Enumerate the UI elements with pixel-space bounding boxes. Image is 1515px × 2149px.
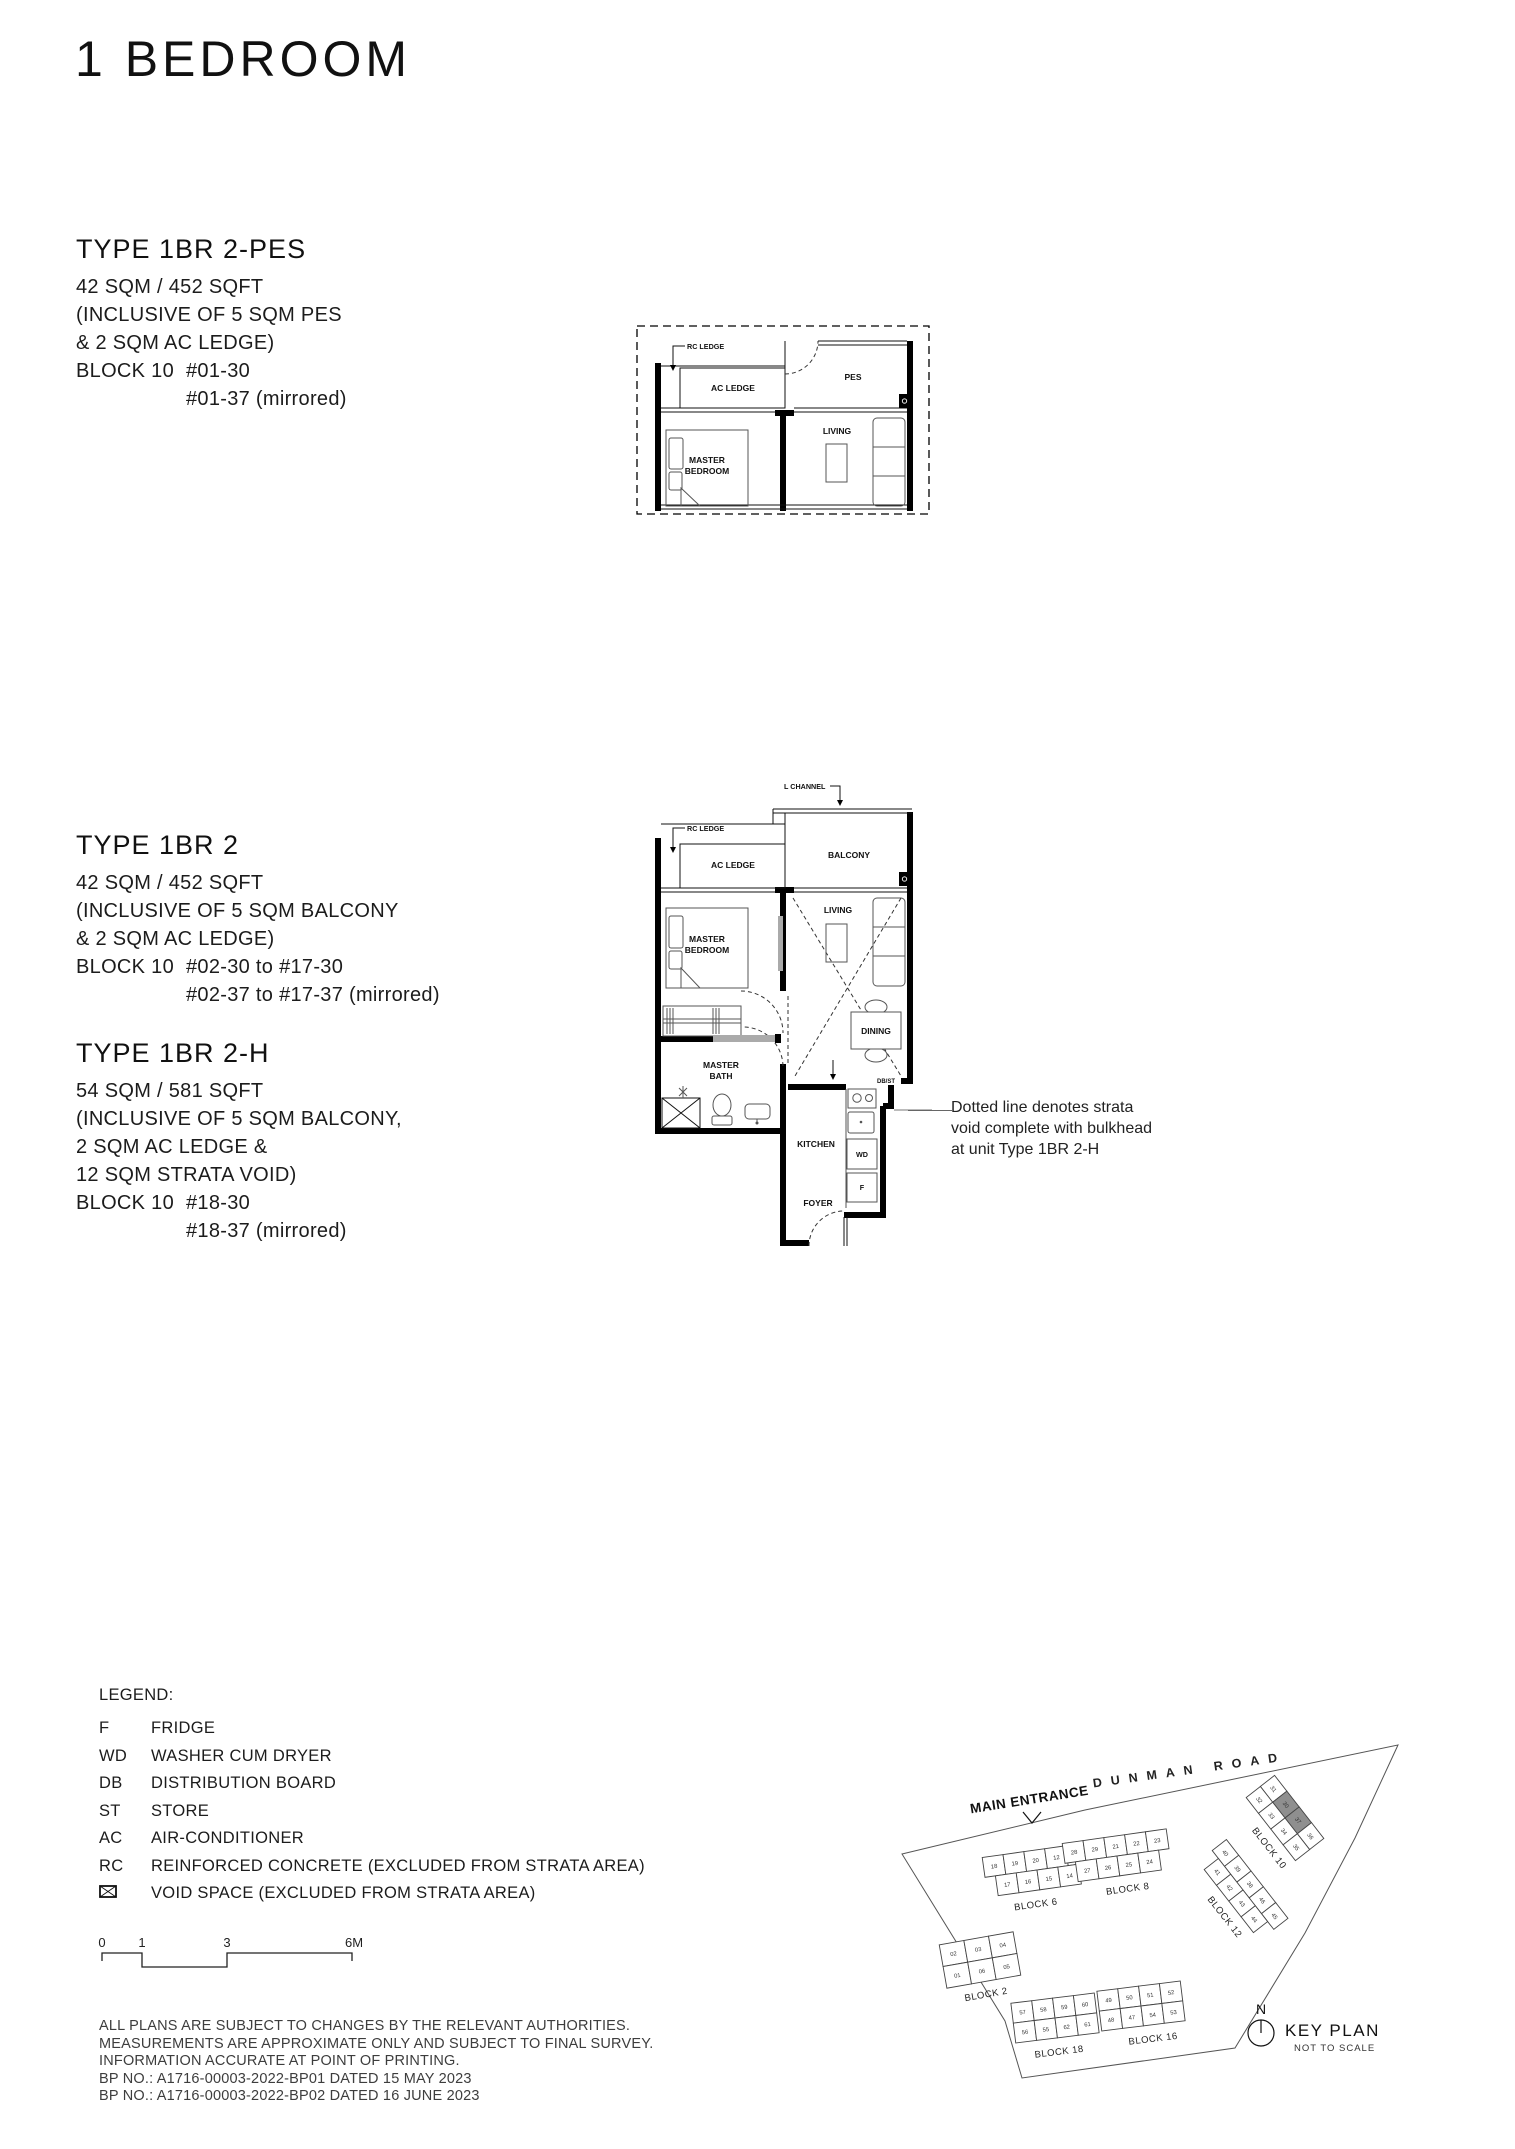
keyplan-unit-number: 62: [1063, 2024, 1070, 2031]
room-label-foyer: FOYER: [803, 1198, 832, 1208]
keyplan-unit-number: 26: [1105, 1865, 1112, 1872]
legend-row: AC AIR-CONDITIONER: [99, 1825, 645, 1853]
unit-range: #18-37 (mirrored): [186, 1217, 347, 1245]
room-label-kitchen: KITCHEN: [797, 1139, 835, 1149]
keyplan-unit-number: 20: [1032, 1858, 1039, 1865]
bath-sliding-door: [713, 1035, 779, 1042]
bath-door-arc: [744, 1027, 783, 1066]
room-label-rc-ledge: RC LEDGE: [687, 824, 724, 833]
type-detail: (INCLUSIVE OF 5 SQM PES: [76, 301, 347, 329]
type-name: TYPE 1BR 2: [76, 830, 440, 861]
pillow: [669, 916, 683, 948]
keyplan-unit-number: 02: [950, 1951, 957, 1958]
room-label-balcony: BALCONY: [828, 850, 870, 860]
keyplan-unit-number: 28: [1071, 1850, 1078, 1857]
legend-abbr: ST: [99, 1802, 151, 1821]
pes-door-arc: [785, 341, 818, 374]
keyplan-unit-number: 03: [975, 1947, 982, 1954]
type-area: 54 SQM / 581 SQFT: [76, 1077, 402, 1105]
disclaimer-line: BP NO.: A1716-00003-2022-BP01 DATED 15 M…: [99, 2071, 653, 2089]
legend-desc: WASHER CUM DRYER: [151, 1747, 332, 1766]
keyplan-unit-number: 61: [1084, 2022, 1091, 2029]
type-detail: (INCLUSIVE OF 5 SQM BALCONY,: [76, 1105, 402, 1133]
door-handle: [775, 1034, 781, 1043]
type-detail: & 2 SQM AC LEDGE): [76, 329, 347, 357]
label-db-st: DB/ST: [877, 1079, 895, 1085]
main-entrance-label: MAIN ENTRANCE: [969, 1783, 1090, 1817]
page-title: 1 BEDROOM: [75, 30, 411, 88]
keyplan-block-block-10: 3130373632333435BLOCK 10: [1231, 1775, 1324, 1872]
keyplan-unit-number: 47: [1128, 2015, 1135, 2022]
floorplan-type-1br-2-pes: RC LEDGE AC LEDGE PES LIVING MASTER BEDR…: [633, 318, 933, 518]
label-wd: WD: [856, 1150, 868, 1159]
keyplan-block-label: BLOCK 16: [1128, 2031, 1178, 2048]
legend-abbr: RC: [99, 1857, 151, 1876]
legend-desc: AIR-CONDITIONER: [151, 1829, 304, 1848]
room-label-master-bedroom: BEDROOM: [685, 945, 729, 955]
bed-fold: [681, 488, 700, 506]
room-label-master-bedroom: MASTER: [689, 455, 725, 465]
pillow: [669, 951, 682, 969]
label-fridge: F: [860, 1183, 865, 1192]
keyplan-unit-number: 23: [1154, 1838, 1161, 1845]
scale-tick: 0: [98, 1935, 105, 1950]
toilet: [713, 1094, 731, 1116]
keyplan-unit-number: 01: [954, 1973, 961, 1980]
keyplan-block-block-8: 282921222327262524BLOCK 8: [1062, 1829, 1174, 1903]
keyplan-unit-number: 25: [1125, 1862, 1132, 1869]
legend-row: RC REINFORCED CONCRETE (EXCLUDED FROM ST…: [99, 1853, 645, 1881]
scale-bar: 0 1 3 6M: [96, 1936, 386, 1978]
room-label-pes: PES: [844, 372, 861, 382]
block-label: BLOCK 10: [76, 953, 186, 1009]
legend-row: DB DISTRIBUTION BOARD: [99, 1770, 645, 1798]
legend-desc: VOID SPACE (EXCLUDED FROM STRATA AREA): [151, 1884, 536, 1903]
keyplan-unit-number: 51: [1147, 1993, 1154, 2000]
pillow: [669, 438, 683, 469]
keyplan-unit-number: 15: [1045, 1876, 1052, 1883]
ac-unit-icon: [899, 394, 910, 408]
unit-range: #01-30: [186, 357, 347, 385]
block-label: BLOCK 10: [76, 357, 186, 413]
scale-bar-line: [102, 1953, 352, 1967]
type-name: TYPE 1BR 2-H: [76, 1038, 402, 1069]
rc-ledge-leader: [673, 828, 685, 852]
disclaimer: ALL PLANS ARE SUBJECT TO CHANGES BY THE …: [99, 2018, 653, 2106]
type-1br-2-pes-info: TYPE 1BR 2-PES 42 SQM / 452 SQFT (INCLUS…: [76, 234, 347, 413]
keyplan-unit-number: 05: [1003, 1964, 1010, 1971]
legend-row: ST STORE: [99, 1798, 645, 1826]
type-1br-2-h-info: TYPE 1BR 2-H 54 SQM / 581 SQFT (INCLUSIV…: [76, 1038, 402, 1245]
type-name: TYPE 1BR 2-PES: [76, 234, 347, 265]
room-label-ac-ledge: AC LEDGE: [711, 860, 755, 870]
keyplan-unit-number: 21: [1112, 1844, 1119, 1851]
type-area: 42 SQM / 452 SQFT: [76, 869, 440, 897]
legend-abbr: DB: [99, 1774, 151, 1793]
legend-desc: REINFORCED CONCRETE (EXCLUDED FROM STRAT…: [151, 1857, 645, 1876]
disclaimer-line: ALL PLANS ARE SUBJECT TO CHANGES BY THE …: [99, 2018, 653, 2036]
legend: LEGEND: F FRIDGE WD WASHER CUM DRYER DB …: [99, 1686, 645, 1908]
shower-trap-icon: [679, 1086, 687, 1098]
legend-desc: DISTRIBUTION BOARD: [151, 1774, 336, 1793]
room-label-living: LIVING: [823, 426, 852, 436]
keyplan-unit-number: 29: [1091, 1847, 1098, 1854]
keyplan-unit-number: 56: [1022, 2030, 1029, 2037]
disclaimer-line: INFORMATION ACCURATE AT POINT OF PRINTIN…: [99, 2053, 653, 2071]
legend-abbr: WD: [99, 1747, 151, 1766]
legend-title: LEGEND:: [99, 1686, 645, 1705]
annotation-line: void complete with bulkhead: [951, 1118, 1152, 1139]
keyplan-subtitle: NOT TO SCALE: [1294, 2043, 1375, 2054]
unit-range: #18-30: [186, 1189, 347, 1217]
keyplan-block-block-16: 4950515248475453BLOCK 16: [1097, 1981, 1188, 2051]
ac-unit-icon: [899, 872, 910, 886]
void-space-icon: [99, 1884, 151, 1903]
unit-range: #02-30 to #17-30: [186, 953, 440, 981]
annotation-leader-line: [908, 1110, 952, 1111]
entrance-door-arc: [809, 1211, 844, 1246]
type-detail: 12 SQM STRATA VOID): [76, 1161, 402, 1189]
keyplan-unit-number: 60: [1082, 2002, 1089, 2009]
keyplan-unit-number: 58: [1040, 2007, 1047, 2014]
label-l-channel: L CHANNEL: [784, 782, 826, 791]
floorplan-type-1br-2: L CHANNEL RC LEDGE AC LEDGE BALCONY LIVI…: [633, 776, 933, 1268]
strata-void-annotation: Dotted line denotes strata void complete…: [951, 1097, 1152, 1160]
keyplan-unit-number: 53: [1170, 2010, 1177, 2017]
room-label-living: LIVING: [824, 905, 853, 915]
scale-tick: 6M: [345, 1935, 363, 1950]
bed-fold: [681, 968, 700, 988]
type-area: 42 SQM / 452 SQFT: [76, 273, 347, 301]
keyplan-unit-number: 57: [1019, 2010, 1026, 2017]
sofa: [873, 418, 905, 506]
legend-desc: STORE: [151, 1802, 209, 1821]
sofa: [873, 898, 905, 986]
road-label: DUNMAN ROAD: [1092, 1750, 1287, 1791]
room-label-master-bath: MASTER: [703, 1060, 739, 1070]
keyplan-unit-number: 52: [1168, 1990, 1175, 1997]
room-label-rc-ledge: RC LEDGE: [687, 342, 724, 351]
floorplan-brochure-page: 1 BEDROOM TYPE 1BR 2-PES 42 SQM / 452 SQ…: [0, 0, 1515, 2149]
basin: [745, 1104, 770, 1119]
coffee-table: [826, 444, 847, 482]
l-channel-leader: [830, 786, 840, 805]
sliding-door: [778, 916, 783, 971]
key-plan: DUNMAN ROAD MAIN ENTRANCE 020304010605BL…: [885, 1718, 1475, 2148]
hob: [848, 1089, 876, 1108]
keyplan-block-label: BLOCK 6: [1013, 1897, 1058, 1914]
keyplan-title: KEY PLAN: [1285, 2021, 1380, 2040]
keyplan-unit-number: 49: [1105, 1998, 1112, 2005]
annotation-line: Dotted line denotes strata: [951, 1097, 1152, 1118]
keyplan-unit-number: 50: [1126, 1995, 1133, 2002]
type-1br-2-info: TYPE 1BR 2 42 SQM / 452 SQFT (INCLUSIVE …: [76, 830, 440, 1009]
legend-row: WD WASHER CUM DRYER: [99, 1743, 645, 1771]
keyplan-unit-number: 17: [1004, 1882, 1011, 1889]
disclaimer-line: MEASUREMENTS ARE APPROXIMATE ONLY AND SU…: [99, 2036, 653, 2054]
legend-abbr: AC: [99, 1829, 151, 1848]
type-detail: & 2 SQM AC LEDGE): [76, 925, 440, 953]
scale-tick: 1: [138, 1935, 145, 1950]
coffee-table: [826, 924, 847, 962]
keyplan-block-label: BLOCK 18: [1034, 2044, 1084, 2061]
keyplan-block-block-18: 5758596056556261BLOCK 18: [1011, 1993, 1102, 2063]
keyplan-unit-number: 22: [1133, 1841, 1140, 1848]
room-label-master-bedroom: BEDROOM: [685, 466, 729, 476]
keyplan-unit-number: 18: [991, 1864, 998, 1871]
keyplan-unit-number: 06: [978, 1969, 985, 1976]
keyplan-block-label: BLOCK 8: [1105, 1881, 1150, 1898]
room-label-ac-ledge: AC LEDGE: [711, 383, 755, 393]
keyplan-block-block-2: 020304010605BLOCK 2: [939, 1932, 1024, 2007]
keyplan-block-label: BLOCK 2: [964, 1986, 1009, 2004]
room-label-master-bath: BATH: [710, 1071, 733, 1081]
legend-row: F FRIDGE: [99, 1715, 645, 1743]
keyplan-unit-number: 48: [1108, 2018, 1115, 2025]
legend-desc: FRIDGE: [151, 1719, 215, 1738]
type-detail: 2 SQM AC LEDGE &: [76, 1133, 402, 1161]
legend-abbr: F: [99, 1719, 151, 1738]
disclaimer-line: BP NO.: A1716-00003-2022-BP02 DATED 16 J…: [99, 2088, 653, 2106]
keyplan-unit-number: 19: [1011, 1861, 1018, 1868]
unit-range: #02-37 to #17-37 (mirrored): [186, 981, 440, 1009]
keyplan-unit-number: 59: [1061, 2005, 1068, 2012]
keyplan-unit-number: 27: [1084, 1868, 1091, 1875]
scale-tick: 3: [223, 1935, 230, 1950]
type-detail: (INCLUSIVE OF 5 SQM BALCONY: [76, 897, 440, 925]
dining-chair: [865, 1048, 887, 1062]
unit-range: #01-37 (mirrored): [186, 385, 347, 413]
compass: N: [1248, 2001, 1274, 2046]
keyplan-unit-number: 16: [1025, 1879, 1032, 1886]
keyplan-unit-number: 12: [1053, 1855, 1060, 1862]
wardrobe: [663, 1006, 741, 1036]
room-label-dining: DINING: [861, 1026, 891, 1036]
block-label: BLOCK 10: [76, 1189, 186, 1245]
room-label-master-bedroom: MASTER: [689, 934, 725, 944]
legend-row: VOID SPACE (EXCLUDED FROM STRATA AREA): [99, 1880, 645, 1908]
keyplan-unit-number: 55: [1042, 2027, 1049, 2034]
pillow: [669, 472, 682, 490]
keyplan-blocks: 020304010605BLOCK 2181920121317161514BLO…: [939, 1775, 1324, 2062]
annotation-line: at unit Type 1BR 2-H: [951, 1139, 1152, 1160]
bedroom-door-arc: [741, 991, 783, 1033]
north-label: N: [1256, 2001, 1266, 2017]
